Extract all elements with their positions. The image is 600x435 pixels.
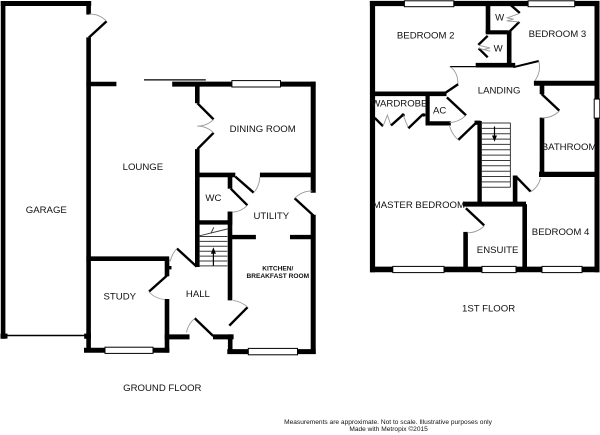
svg-text:Made with Metropix ©2015: Made with Metropix ©2015 [349,425,428,433]
svg-text:GARAGE: GARAGE [26,205,67,216]
svg-text:WC: WC [205,193,221,204]
svg-text:KITCHEN/: KITCHEN/ [262,266,293,273]
svg-text:DINING ROOM: DINING ROOM [230,124,296,135]
svg-text:ENSUITE: ENSUITE [477,245,519,256]
svg-text:BEDROOM 3: BEDROOM 3 [529,29,587,40]
svg-text:LANDING: LANDING [478,85,521,96]
svg-text:LOUNGE: LOUNGE [123,162,164,173]
svg-text:GROUND FLOOR: GROUND FLOOR [123,383,201,394]
svg-text:BATHROOM: BATHROOM [542,142,597,153]
svg-text:AC: AC [433,105,446,116]
svg-text:W: W [494,44,504,55]
svg-text:BEDROOM 2: BEDROOM 2 [397,30,455,41]
svg-text:1ST FLOOR: 1ST FLOOR [462,304,515,315]
svg-text:MASTER BEDROOM: MASTER BEDROOM [373,200,465,211]
svg-text:BEDROOM 4: BEDROOM 4 [532,227,590,238]
svg-text:WARDROBE: WARDROBE [371,98,427,109]
svg-text:HALL: HALL [186,289,211,300]
svg-text:BREAKFAST ROOM: BREAKFAST ROOM [246,273,309,280]
svg-text:UTILITY: UTILITY [253,211,289,222]
svg-text:W: W [495,13,505,24]
svg-text:STUDY: STUDY [104,291,137,302]
